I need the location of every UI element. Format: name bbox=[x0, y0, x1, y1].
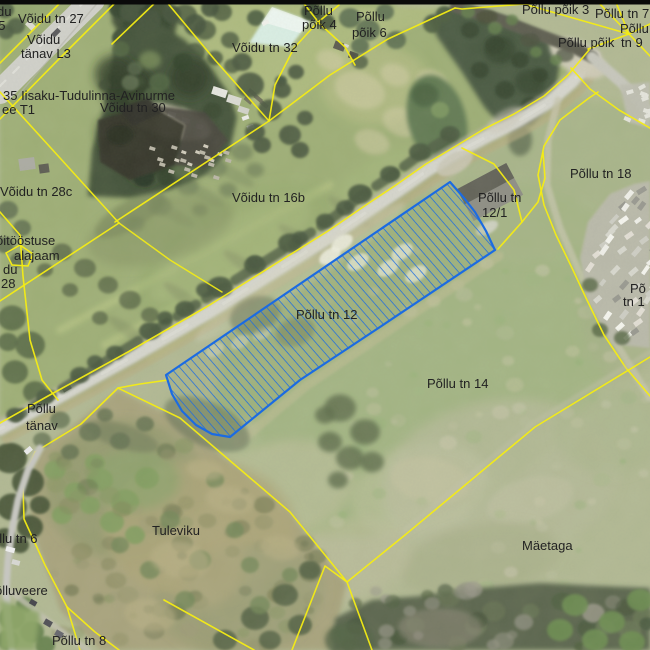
svg-text:Võidu tn 27: Võidu tn 27 bbox=[18, 11, 84, 26]
svg-text:Põllu: Põllu bbox=[620, 21, 649, 36]
svg-text:alajaam: alajaam bbox=[14, 248, 60, 263]
svg-text:Võidu tn 30: Võidu tn 30 bbox=[100, 100, 166, 115]
svg-text:Mäetaga: Mäetaga bbox=[522, 538, 573, 553]
svg-text:ölluveere: ölluveere bbox=[0, 583, 48, 598]
svg-text:põik 6: põik 6 bbox=[352, 25, 387, 40]
svg-text:tn 9: tn 9 bbox=[621, 35, 643, 50]
svg-text:Põllu tn 12: Põllu tn 12 bbox=[296, 307, 357, 322]
svg-text:12/1: 12/1 bbox=[482, 205, 507, 220]
svg-text:Põllu tn: Põllu tn bbox=[478, 190, 521, 205]
svg-text:Võidu tn 28c: Võidu tn 28c bbox=[0, 184, 73, 199]
svg-text:Põllu põik: Põllu põik bbox=[558, 35, 615, 50]
svg-text:Põllu: Põllu bbox=[27, 401, 56, 416]
svg-text:Võidu: Võidu bbox=[27, 32, 60, 47]
svg-text:Põllu tn 14: Põllu tn 14 bbox=[427, 376, 488, 391]
svg-text:öllu tn 6: öllu tn 6 bbox=[0, 531, 38, 546]
svg-text:du: du bbox=[0, 4, 11, 19]
svg-text:Põllu: Põllu bbox=[304, 3, 333, 18]
svg-text:tänav L3: tänav L3 bbox=[21, 46, 71, 61]
svg-text:Võidu tn 16b: Võidu tn 16b bbox=[232, 190, 305, 205]
svg-text:õitööstuse: õitööstuse bbox=[0, 233, 55, 248]
svg-text:Tuleviku: Tuleviku bbox=[152, 523, 200, 538]
svg-text:Põllu tn 18: Põllu tn 18 bbox=[570, 166, 631, 181]
svg-text:Põllu tn 8: Põllu tn 8 bbox=[52, 633, 106, 648]
svg-text:Põllu tn 7: Põllu tn 7 bbox=[595, 6, 649, 21]
svg-text:tn 1: tn 1 bbox=[623, 294, 645, 309]
svg-text:Põllu: Põllu bbox=[356, 9, 385, 24]
svg-text:tänav: tänav bbox=[26, 418, 58, 433]
svg-text:Võidu tn 32: Võidu tn 32 bbox=[232, 40, 298, 55]
svg-text:põik 4: põik 4 bbox=[302, 17, 337, 32]
svg-text:du: du bbox=[3, 262, 17, 277]
svg-text:15: 15 bbox=[0, 18, 5, 33]
svg-text:28: 28 bbox=[1, 276, 15, 291]
svg-text:ee T1: ee T1 bbox=[2, 102, 35, 117]
